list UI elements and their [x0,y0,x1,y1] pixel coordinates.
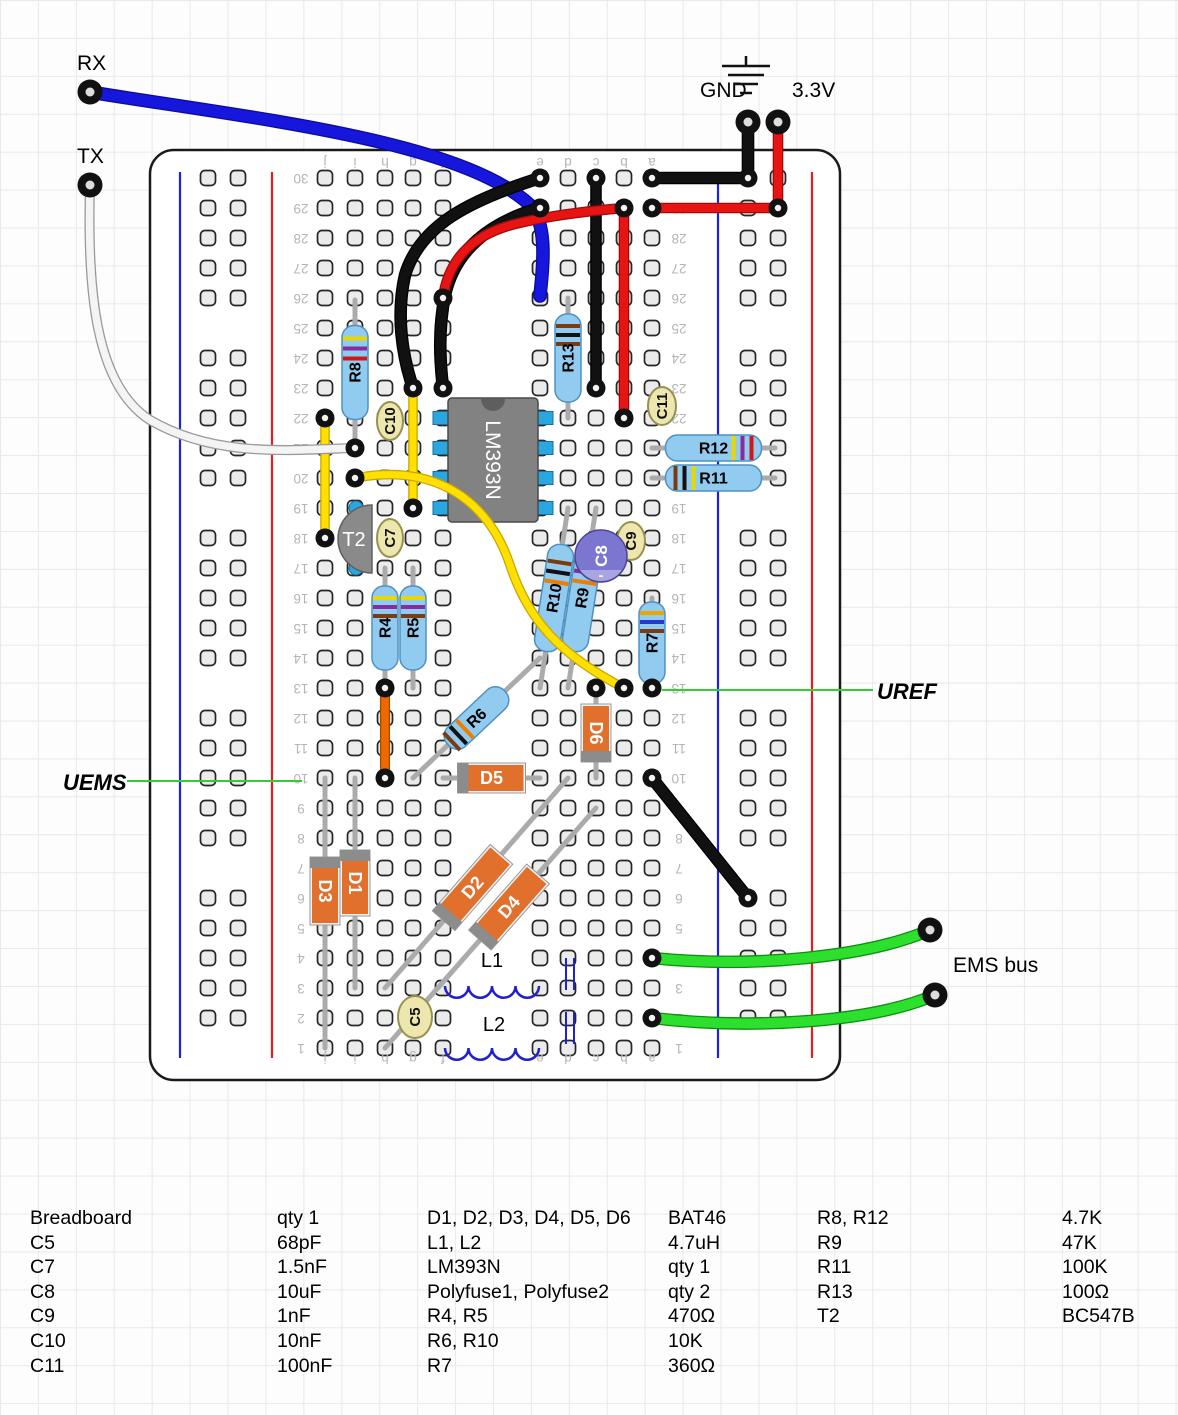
parts-list-row: C810uF [30,1280,332,1305]
hole [231,291,246,306]
row-number: 18 [671,531,686,546]
hole [533,831,548,846]
hole [231,741,246,756]
hole [617,621,632,636]
hole [201,831,216,846]
hole [741,741,756,756]
hole [378,501,393,516]
hole [201,291,216,306]
hole [348,651,363,666]
hole [318,171,333,186]
hole [771,711,786,726]
hole [645,921,660,936]
diode-label: D3 [315,879,335,902]
row-number: 25 [293,321,308,336]
parts-list-row: R4, R5470Ω [427,1304,726,1329]
hole [771,921,786,936]
hole [231,711,246,726]
part-name: C9 [30,1304,277,1329]
part-value: BC547B [1062,1305,1135,1327]
hole [561,261,576,276]
column-letter: d [564,155,572,170]
row-number: 12 [293,711,308,726]
row-number: 5 [675,921,683,936]
hole [231,201,246,216]
resistor-label: R12 [699,441,728,458]
hole [406,741,421,756]
hole [436,621,451,636]
wire-endpoint [434,379,453,398]
hole [378,171,393,186]
v33-label: 3.3V [792,79,835,102]
wire-endpoint [643,949,662,968]
resistor-label: R9 [573,587,593,610]
hole [771,291,786,306]
row-number: 11 [672,741,686,756]
hole [318,711,333,726]
hole [589,981,604,996]
row-number: 28 [671,231,686,246]
wire-endpoint [587,679,606,698]
parts-list-column: D1, D2, D3, D4, D5, D6BAT46L1, L24.7uHLM… [427,1206,726,1378]
wire-endpoint [643,169,662,188]
part-value: BAT46 [668,1207,726,1229]
part-value: 100K [1062,1256,1108,1278]
rx-pin [78,80,103,105]
hole [741,291,756,306]
hole [589,471,604,486]
hole [201,261,216,276]
uems-label: UEMS [63,770,127,795]
hole [436,651,451,666]
row-number: 11 [294,741,308,756]
column-letter: h [381,155,389,170]
resistor-label: R11 [699,471,728,488]
part-name: R6, R10 [427,1329,668,1354]
gnd-label: GND [700,79,747,102]
hole [201,1011,216,1026]
capacitor-C10: C10 [377,402,403,440]
hole [617,981,632,996]
uref-label: UREF [877,679,937,704]
diode-cathode-band [340,850,370,861]
hole [201,981,216,996]
hole [645,741,660,756]
parts-list-row: R13100Ω [817,1280,1135,1305]
hole [436,711,451,726]
column-letter: g [409,1051,417,1066]
parts-list-row: C71.5nF [30,1255,332,1280]
wire-endpoint [615,199,634,218]
hole [231,531,246,546]
hole [231,591,246,606]
wire-endpoint [316,409,335,428]
column-letter: a [648,1051,656,1066]
hole [231,1011,246,1026]
hole [201,711,216,726]
parts-list-row: C568pF [30,1231,332,1256]
fritzing-breadboard-view: 1122334455667788991010111112121313141415… [0,0,1178,1415]
hole [617,1011,632,1026]
hole [645,801,660,816]
part-name: R13 [817,1280,1062,1305]
polarity-mark: - [599,567,604,583]
inductor-label: L2 [483,1014,505,1036]
part-value: 4.7uH [668,1232,720,1254]
hole [231,651,246,666]
part-name: Breadboard [30,1206,277,1231]
row-number: 9 [297,801,305,816]
row-number: 7 [675,861,683,876]
hole [771,651,786,666]
hole [201,471,216,486]
inductor-label: L1 [481,950,503,972]
diode-label: D6 [586,721,606,744]
hole [533,951,548,966]
part-name: LM393N [427,1255,668,1280]
part-value: 10nF [277,1330,321,1352]
hole [741,771,756,786]
hole [771,981,786,996]
part-value: 360Ω [668,1355,715,1377]
part-name: D1, D2, D3, D4, D5, D6 [427,1206,668,1231]
hole [645,891,660,906]
capacitor-label: C5 [407,1007,424,1026]
hole [318,231,333,246]
hole [617,651,632,666]
hole [561,231,576,246]
resistor-label: R7 [645,633,662,654]
capacitor-C7: C7 [377,519,403,557]
hole [589,891,604,906]
hole [378,381,393,396]
hole [533,921,548,936]
hole [318,351,333,366]
rx-label: RX [77,52,106,75]
hole [561,711,576,726]
row-number: 25 [671,321,686,336]
tx-label: TX [77,145,104,168]
hole [771,531,786,546]
wire-endpoint [531,199,550,218]
hole [617,861,632,876]
row-number: 2 [297,1011,305,1026]
hole [231,831,246,846]
hole [348,171,363,186]
row-number: 3 [675,981,683,996]
part-name: C5 [30,1231,277,1256]
part-name: C11 [30,1354,277,1379]
hole [201,891,216,906]
hole [348,231,363,246]
hole [771,261,786,276]
hole [617,801,632,816]
hole [533,381,548,396]
hole [741,921,756,936]
part-name: C7 [30,1255,277,1280]
parts-list-row: R7360Ω [427,1354,726,1379]
hole [645,861,660,876]
hole [617,921,632,936]
hole [406,711,421,726]
hole [771,891,786,906]
hole [645,561,660,576]
hole [589,921,604,936]
wire-endpoint [643,769,662,788]
hole [318,741,333,756]
row-number: 8 [297,831,305,846]
hole [771,741,786,756]
row-number: 27 [293,261,308,276]
hole [378,801,393,816]
row-number: 4 [297,951,305,966]
row-number: 22 [293,411,308,426]
hole [645,711,660,726]
row-number: 15 [293,621,308,636]
hole [771,381,786,396]
parts-list-row: C1010nF [30,1329,332,1354]
hole [406,861,421,876]
hole [406,981,421,996]
hole [231,951,246,966]
hole [231,921,246,936]
hole [561,921,576,936]
wire-endpoint [739,889,758,908]
parts-list-row: D1, D2, D3, D4, D5, D6BAT46 [427,1206,726,1231]
hole [436,801,451,816]
column-letter: i [354,1051,357,1066]
row-number: 10 [293,771,308,786]
hole [645,501,660,516]
hole [378,921,393,936]
parts-list-row: L1, L24.7uH [427,1231,726,1256]
wire-endpoint [531,169,550,188]
wire-endpoint [615,409,634,428]
hole [406,921,421,936]
row-number: 24 [671,351,687,366]
hole [771,831,786,846]
hole [201,231,216,246]
hole [378,261,393,276]
row-number: 6 [297,891,305,906]
hole [436,831,451,846]
capacitor-label: C11 [654,393,671,420]
row-number: 7 [297,861,305,876]
capacitor-C5: C5 [398,996,432,1038]
parts-list-row: R11100K [817,1255,1135,1280]
part-value: qty 1 [277,1207,319,1229]
hole [645,321,660,336]
hole [741,531,756,546]
row-number: 17 [671,561,686,576]
row-number: 19 [671,501,686,516]
hole [589,441,604,456]
column-letter: a [648,155,656,170]
hole [561,891,576,906]
hole [348,621,363,636]
hole [645,981,660,996]
hole [348,741,363,756]
row-number: 26 [293,291,308,306]
hole [589,951,604,966]
hole [348,591,363,606]
parts-list-column: R8, R124.7KR947KR11100KR13100ΩT2BC547B [817,1206,1135,1329]
hole [771,621,786,636]
row-number: 27 [671,261,686,276]
part-name: C10 [30,1329,277,1354]
ic-label: LM393N [481,420,504,499]
part-value: 10K [668,1330,703,1352]
diode-label: D5 [480,768,503,788]
hole [201,351,216,366]
hole [741,411,756,426]
hole [378,951,393,966]
hole [318,291,333,306]
hole [561,441,576,456]
hole [231,801,246,816]
parts-list-row: R947K [817,1231,1135,1256]
hole [589,1011,604,1026]
hole [741,981,756,996]
hole [436,561,451,576]
wire-endpoint [739,169,758,188]
hole [318,321,333,336]
resistor-label: R13 [561,343,578,372]
diode-label: D1 [345,871,365,894]
row-number: 26 [671,291,686,306]
hole [231,351,246,366]
part-value: 100Ω [1062,1281,1109,1303]
hole [201,951,216,966]
column-letter: d [564,1051,572,1066]
hole [771,771,786,786]
resistor-label: R4 [378,618,395,639]
column-letter: i [354,155,357,170]
hole [561,471,576,486]
hole [201,171,216,186]
diode-cathode-band [310,857,340,868]
column-letter: c [592,1051,599,1066]
row-number: 23 [293,381,308,396]
hole [378,231,393,246]
hole [378,861,393,876]
hole [201,621,216,636]
row-number: 16 [293,591,308,606]
hole [561,741,576,756]
hole [436,591,451,606]
part-value: 68pF [277,1232,321,1254]
hole [741,711,756,726]
parts-list-row: R8, R124.7K [817,1206,1135,1231]
hole [533,531,548,546]
parts-list-row: R6, R1010K [427,1329,726,1354]
row-number: 10 [671,771,686,786]
part-value: qty 1 [668,1256,710,1278]
hole [741,801,756,816]
hole [533,741,548,756]
resistor-R12: R12 [652,435,775,461]
hole [645,831,660,846]
hole [741,261,756,276]
part-value: 470Ω [668,1305,715,1327]
hole [741,231,756,246]
hole [318,591,333,606]
row-number: 20 [293,471,308,486]
part-value: 4.7K [1062,1207,1102,1229]
capacitor-label: C10 [382,407,399,435]
row-number: 30 [293,171,308,186]
hole [406,801,421,816]
hole [231,231,246,246]
hole [378,831,393,846]
row-number: 16 [671,591,686,606]
row-number: 13 [293,681,308,696]
part-name: C8 [30,1280,277,1305]
hole [378,351,393,366]
part-value: 100nF [277,1355,332,1377]
wire-endpoint [587,379,606,398]
diode-D5: D5 [443,763,540,793]
row-number: 24 [293,351,309,366]
hole [406,891,421,906]
hole [561,171,576,186]
row-number: 1 [675,1041,683,1056]
hole [231,261,246,276]
hole [348,681,363,696]
row-number: 12 [671,711,686,726]
wire-endpoint [404,379,423,398]
hole [771,591,786,606]
wire-endpoint [615,679,634,698]
hole [741,381,756,396]
parts-list-row: Polyfuse1, Polyfuse2qty 2 [427,1280,726,1305]
hole [589,831,604,846]
wire-endpoint [643,199,662,218]
ems-bus-pin [923,983,948,1008]
hole [741,831,756,846]
wire-endpoint [376,679,395,698]
row-number: 5 [297,921,305,936]
hole [318,261,333,276]
gnd-pin [736,110,761,135]
hole [231,891,246,906]
hole [645,531,660,546]
hole [378,321,393,336]
hole [436,171,451,186]
hole [771,411,786,426]
hole [201,741,216,756]
hole [617,441,632,456]
part-value: 1nF [277,1305,311,1327]
wire-endpoint [346,439,365,458]
hole [201,381,216,396]
hole [617,591,632,606]
parts-list-row: C11100nF [30,1354,332,1379]
part-name: Polyfuse1, Polyfuse2 [427,1280,668,1305]
hole [201,531,216,546]
hole [406,531,421,546]
part-value: 1.5nF [277,1256,327,1278]
wire-endpoint [316,529,335,548]
hole [348,711,363,726]
row-number: 28 [293,231,308,246]
hole [201,591,216,606]
hole [318,381,333,396]
row-number: 1 [297,1041,305,1056]
hole [378,291,393,306]
hole [231,171,246,186]
capacitor-label: C7 [382,528,399,547]
